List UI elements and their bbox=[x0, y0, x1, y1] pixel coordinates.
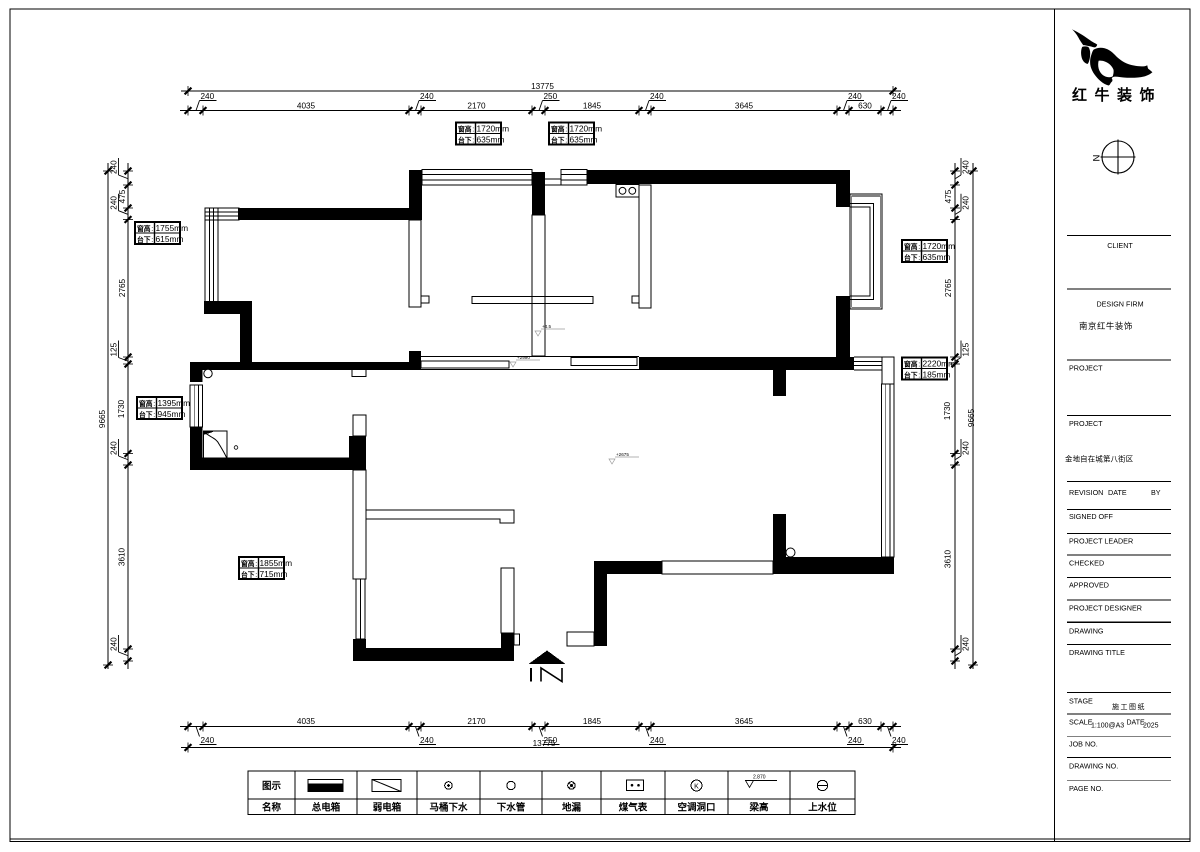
svg-text:240: 240 bbox=[962, 441, 971, 455]
svg-text:635mm: 635mm bbox=[570, 135, 598, 145]
svg-text:1395mm: 1395mm bbox=[158, 398, 191, 408]
svg-text::: : bbox=[153, 412, 155, 419]
svg-text:DATE: DATE bbox=[1108, 488, 1127, 497]
svg-text:台下: 台下 bbox=[241, 570, 255, 579]
svg-text:1720mm: 1720mm bbox=[923, 241, 956, 251]
svg-text:13775: 13775 bbox=[531, 82, 554, 91]
svg-text:+2675: +2675 bbox=[616, 452, 629, 457]
svg-text:2765: 2765 bbox=[118, 278, 127, 297]
svg-text::: : bbox=[918, 373, 920, 380]
svg-text:窗高: 窗高 bbox=[137, 224, 151, 233]
svg-text:240: 240 bbox=[962, 196, 971, 210]
svg-text:DRAWING: DRAWING bbox=[1069, 627, 1104, 636]
svg-text:2765: 2765 bbox=[944, 278, 953, 297]
svg-text:1720mm: 1720mm bbox=[477, 124, 510, 134]
svg-text:240: 240 bbox=[962, 637, 971, 651]
svg-text:窗高: 窗高 bbox=[904, 242, 918, 251]
svg-text:STAGE: STAGE bbox=[1069, 697, 1093, 706]
svg-text:+4.5: +4.5 bbox=[542, 324, 552, 329]
svg-text:2220mm: 2220mm bbox=[923, 359, 956, 369]
svg-text:240: 240 bbox=[201, 92, 215, 101]
svg-text:弱电箱: 弱电箱 bbox=[373, 802, 402, 814]
svg-text:1720mm: 1720mm bbox=[570, 124, 603, 134]
svg-text:4035: 4035 bbox=[297, 717, 316, 726]
svg-text:635mm: 635mm bbox=[477, 135, 505, 145]
svg-text::: : bbox=[918, 255, 920, 262]
svg-text:630: 630 bbox=[858, 102, 872, 111]
svg-text:9665: 9665 bbox=[98, 409, 107, 428]
svg-text:240: 240 bbox=[110, 160, 119, 174]
svg-text:240: 240 bbox=[848, 736, 862, 745]
svg-text::: : bbox=[472, 138, 474, 145]
svg-text:PROJECT DESIGNER: PROJECT DESIGNER bbox=[1069, 604, 1142, 613]
svg-text:475: 475 bbox=[118, 189, 127, 203]
svg-text:PROJECT: PROJECT bbox=[1069, 364, 1103, 373]
svg-text:N: N bbox=[1092, 155, 1103, 162]
svg-text::: : bbox=[151, 237, 153, 244]
svg-text:BY: BY bbox=[1151, 488, 1161, 497]
svg-text::: : bbox=[151, 226, 153, 233]
svg-text::: : bbox=[255, 561, 257, 568]
svg-text:240: 240 bbox=[892, 736, 906, 745]
svg-text:125: 125 bbox=[962, 342, 971, 356]
svg-text:125: 125 bbox=[110, 342, 119, 356]
svg-text:2025: 2025 bbox=[1143, 723, 1159, 730]
svg-text:PAGE NO.: PAGE NO. bbox=[1069, 784, 1103, 793]
svg-text:REVISION: REVISION bbox=[1069, 488, 1103, 497]
svg-text:CLIENT: CLIENT bbox=[1107, 241, 1133, 250]
svg-text:南京红牛装饰: 南京红牛装饰 bbox=[1079, 321, 1133, 331]
svg-text:635mm: 635mm bbox=[923, 252, 951, 262]
svg-text:240: 240 bbox=[420, 92, 434, 101]
svg-text::: : bbox=[472, 127, 474, 134]
svg-text:240: 240 bbox=[650, 736, 664, 745]
svg-text:APPROVED: APPROVED bbox=[1069, 581, 1109, 590]
svg-text:1845: 1845 bbox=[583, 102, 602, 111]
svg-text:240: 240 bbox=[650, 92, 664, 101]
svg-text:窗高: 窗高 bbox=[139, 399, 153, 408]
svg-text:施工图纸: 施工图纸 bbox=[1112, 702, 1146, 711]
svg-text:地漏: 地漏 bbox=[562, 802, 582, 814]
svg-text:13775: 13775 bbox=[533, 739, 556, 748]
svg-text:185mm: 185mm bbox=[923, 370, 951, 380]
svg-text:DRAWING NO.: DRAWING NO. bbox=[1069, 762, 1118, 771]
svg-text:475: 475 bbox=[944, 189, 953, 203]
svg-text:240: 240 bbox=[201, 736, 215, 745]
svg-text:煤气表: 煤气表 bbox=[619, 802, 648, 814]
svg-text::: : bbox=[918, 362, 920, 369]
svg-text:台下: 台下 bbox=[551, 135, 565, 144]
svg-text:+2990: +2990 bbox=[517, 355, 530, 360]
svg-text:窗高: 窗高 bbox=[551, 124, 565, 133]
svg-text:240: 240 bbox=[420, 736, 434, 745]
svg-text:3645: 3645 bbox=[735, 717, 754, 726]
svg-text:空调洞口: 空调洞口 bbox=[677, 802, 715, 814]
svg-text:CHECKED: CHECKED bbox=[1069, 559, 1104, 568]
svg-text:台下: 台下 bbox=[904, 253, 918, 262]
svg-text:下水管: 下水管 bbox=[497, 802, 526, 814]
svg-text:台下: 台下 bbox=[458, 135, 472, 144]
svg-text::: : bbox=[255, 572, 257, 579]
svg-text:DESIGN FIRM: DESIGN FIRM bbox=[1096, 300, 1143, 309]
svg-text:615mm: 615mm bbox=[156, 234, 184, 244]
svg-text:1845: 1845 bbox=[583, 717, 602, 726]
svg-text::: : bbox=[918, 244, 920, 251]
svg-text:240: 240 bbox=[110, 637, 119, 651]
svg-text:2170: 2170 bbox=[467, 717, 486, 726]
svg-text:JOB NO.: JOB NO. bbox=[1069, 740, 1098, 749]
svg-text:台下: 台下 bbox=[137, 235, 151, 244]
svg-text:图示: 图示 bbox=[262, 781, 282, 792]
svg-text:715mm: 715mm bbox=[260, 569, 288, 579]
svg-text:3610: 3610 bbox=[944, 549, 953, 568]
svg-text:PROJECT LEADER: PROJECT LEADER bbox=[1069, 537, 1133, 546]
svg-text:SCALE: SCALE bbox=[1069, 718, 1093, 727]
svg-text:1755mm: 1755mm bbox=[156, 223, 189, 233]
svg-text:2170: 2170 bbox=[467, 102, 486, 111]
svg-text:3645: 3645 bbox=[735, 102, 754, 111]
svg-text:240: 240 bbox=[110, 441, 119, 455]
svg-text:1730: 1730 bbox=[117, 399, 126, 418]
svg-text:PROJECT: PROJECT bbox=[1069, 419, 1103, 428]
svg-text:250: 250 bbox=[544, 92, 558, 101]
svg-text:945mm: 945mm bbox=[158, 409, 186, 419]
svg-text:总电箱: 总电箱 bbox=[312, 802, 341, 814]
svg-text:4035: 4035 bbox=[297, 102, 316, 111]
svg-text:240: 240 bbox=[892, 92, 906, 101]
svg-text:台下: 台下 bbox=[139, 410, 153, 419]
svg-text:DRAWING TITLE: DRAWING TITLE bbox=[1069, 648, 1125, 657]
svg-text:2.870: 2.870 bbox=[753, 775, 766, 781]
svg-text:窗高: 窗高 bbox=[458, 124, 472, 133]
svg-text::: : bbox=[565, 138, 567, 145]
svg-text:1730: 1730 bbox=[943, 401, 952, 420]
svg-text:240: 240 bbox=[848, 92, 862, 101]
svg-text:3610: 3610 bbox=[118, 547, 127, 566]
svg-text:1:100@A3: 1:100@A3 bbox=[1091, 723, 1124, 730]
svg-text:名称: 名称 bbox=[262, 802, 282, 814]
svg-text:红牛装饰: 红牛装饰 bbox=[1072, 86, 1162, 104]
svg-text:630: 630 bbox=[858, 717, 872, 726]
svg-text:窗高: 窗高 bbox=[241, 559, 255, 568]
svg-text:台下: 台下 bbox=[904, 370, 918, 379]
svg-text:上水位: 上水位 bbox=[808, 802, 837, 814]
svg-text::: : bbox=[565, 127, 567, 134]
svg-text:9665: 9665 bbox=[967, 408, 976, 427]
svg-text:K: K bbox=[694, 784, 699, 791]
svg-text:窗高: 窗高 bbox=[904, 359, 918, 368]
svg-text:SIGNED OFF: SIGNED OFF bbox=[1069, 512, 1114, 521]
svg-text:金地自在城第八街区: 金地自在城第八街区 bbox=[1065, 455, 1134, 464]
svg-text:1855mm: 1855mm bbox=[260, 558, 293, 568]
svg-text:240: 240 bbox=[962, 160, 971, 174]
svg-text::: : bbox=[153, 401, 155, 408]
svg-text:马桶下水: 马桶下水 bbox=[429, 802, 468, 814]
svg-text:梁高: 梁高 bbox=[748, 802, 769, 814]
